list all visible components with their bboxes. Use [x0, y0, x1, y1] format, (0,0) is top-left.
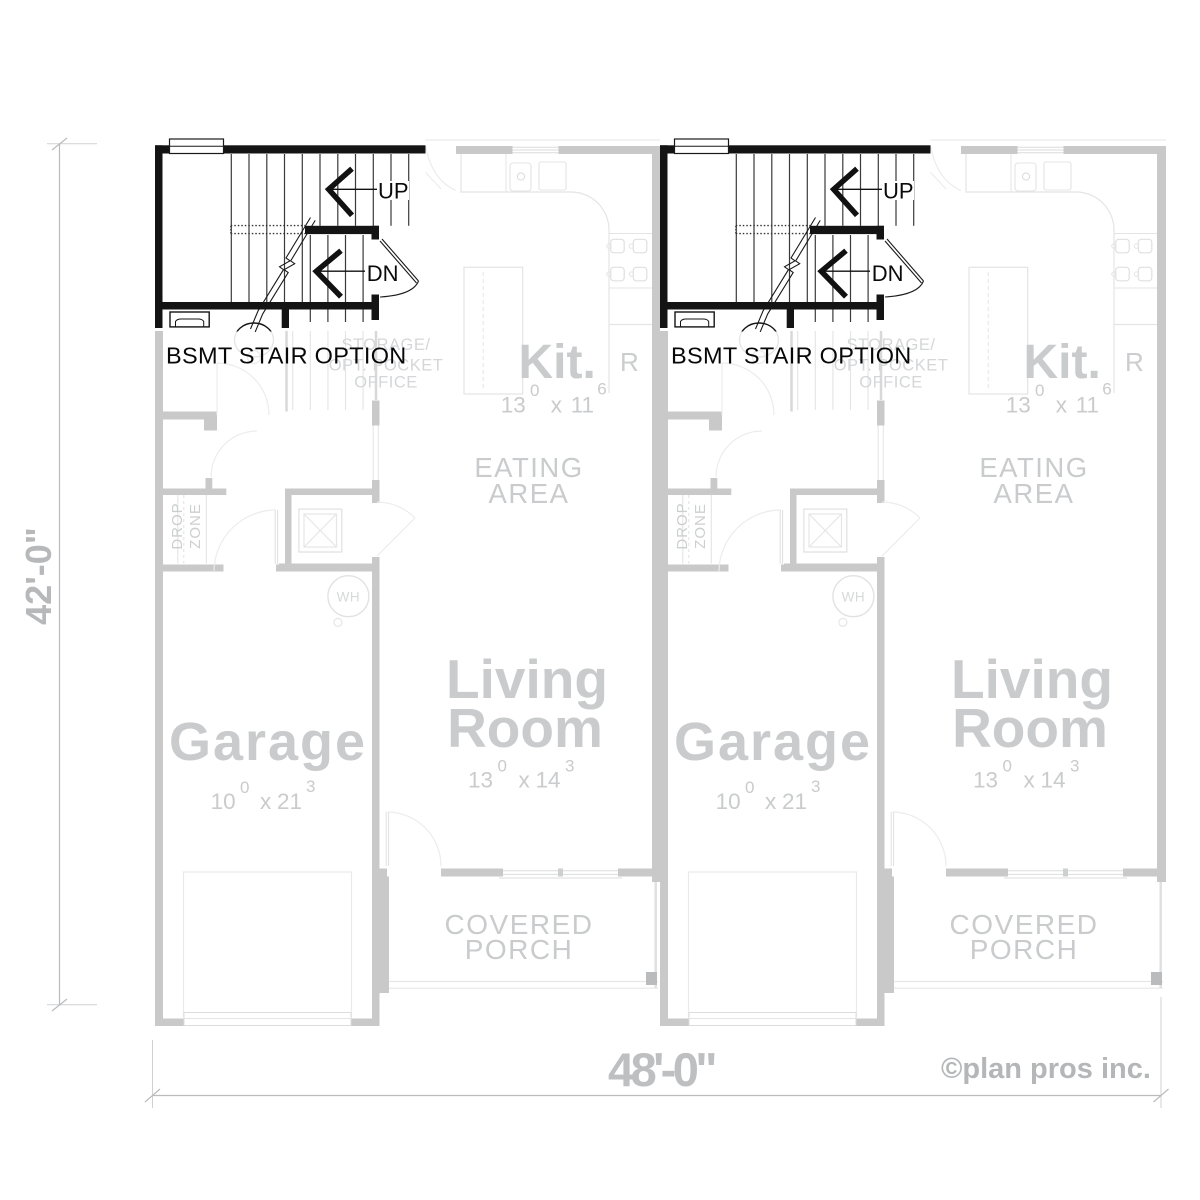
svg-text:BSMT STAIR OPTION: BSMT STAIR OPTION — [166, 343, 407, 369]
svg-text:3: 3 — [565, 757, 574, 776]
svg-text:14: 14 — [536, 768, 561, 793]
svg-text:x: x — [1024, 768, 1036, 793]
svg-text:UP: UP — [378, 179, 409, 204]
svg-text:UP: UP — [883, 179, 914, 204]
svg-text:©plan pros inc.: ©plan pros inc. — [941, 1053, 1151, 1085]
svg-text:x: x — [1056, 393, 1068, 418]
svg-text:DROP: DROP — [674, 502, 691, 549]
svg-text:21: 21 — [782, 789, 807, 814]
svg-text:BSMT STAIR OPTION: BSMT STAIR OPTION — [671, 343, 912, 369]
svg-text:ZONE: ZONE — [187, 503, 204, 549]
svg-text:DROP: DROP — [169, 502, 186, 549]
svg-text:WH: WH — [337, 590, 361, 605]
svg-text:42'-0": 42'-0" — [18, 527, 59, 625]
svg-text:Room: Room — [952, 697, 1108, 759]
svg-text:13: 13 — [501, 393, 526, 418]
svg-text:PORCH: PORCH — [970, 934, 1079, 965]
svg-text:11: 11 — [571, 393, 594, 418]
svg-text:3: 3 — [811, 777, 820, 796]
svg-text:R: R — [620, 347, 639, 377]
svg-text:13: 13 — [973, 768, 998, 793]
svg-text:0: 0 — [240, 778, 249, 797]
svg-text:10: 10 — [716, 789, 741, 814]
svg-text:x: x — [260, 789, 272, 814]
svg-text:48'-0": 48'-0" — [608, 1043, 715, 1096]
svg-text:WH: WH — [842, 590, 866, 605]
svg-text:0: 0 — [1035, 381, 1044, 400]
svg-text:14: 14 — [1041, 768, 1066, 793]
svg-text:13: 13 — [468, 768, 493, 793]
svg-text:x: x — [551, 393, 563, 418]
svg-text:10: 10 — [211, 789, 236, 814]
svg-text:R: R — [1125, 347, 1144, 377]
svg-text:13: 13 — [1006, 393, 1031, 418]
svg-text:6: 6 — [1102, 380, 1111, 399]
svg-text:DN: DN — [367, 261, 399, 286]
svg-text:Garage: Garage — [674, 712, 872, 772]
svg-text:AREA: AREA — [489, 478, 570, 509]
svg-text:0: 0 — [498, 757, 507, 776]
svg-text:x: x — [519, 768, 531, 793]
svg-text:0: 0 — [1003, 757, 1012, 776]
svg-text:OFFICE: OFFICE — [859, 374, 923, 392]
svg-text:3: 3 — [306, 777, 315, 796]
svg-text:x: x — [765, 789, 777, 814]
svg-text:0: 0 — [745, 778, 754, 797]
svg-text:11: 11 — [1076, 393, 1099, 418]
svg-text:21: 21 — [277, 789, 302, 814]
svg-text:0: 0 — [530, 381, 539, 400]
svg-text:6: 6 — [597, 380, 606, 399]
svg-text:OFFICE: OFFICE — [354, 374, 418, 392]
svg-text:3: 3 — [1070, 757, 1079, 776]
svg-text:ZONE: ZONE — [692, 503, 709, 549]
svg-text:PORCH: PORCH — [465, 934, 574, 965]
svg-text:Room: Room — [447, 697, 603, 759]
svg-text:AREA: AREA — [994, 478, 1075, 509]
svg-text:DN: DN — [872, 261, 904, 286]
svg-text:Garage: Garage — [169, 712, 367, 772]
